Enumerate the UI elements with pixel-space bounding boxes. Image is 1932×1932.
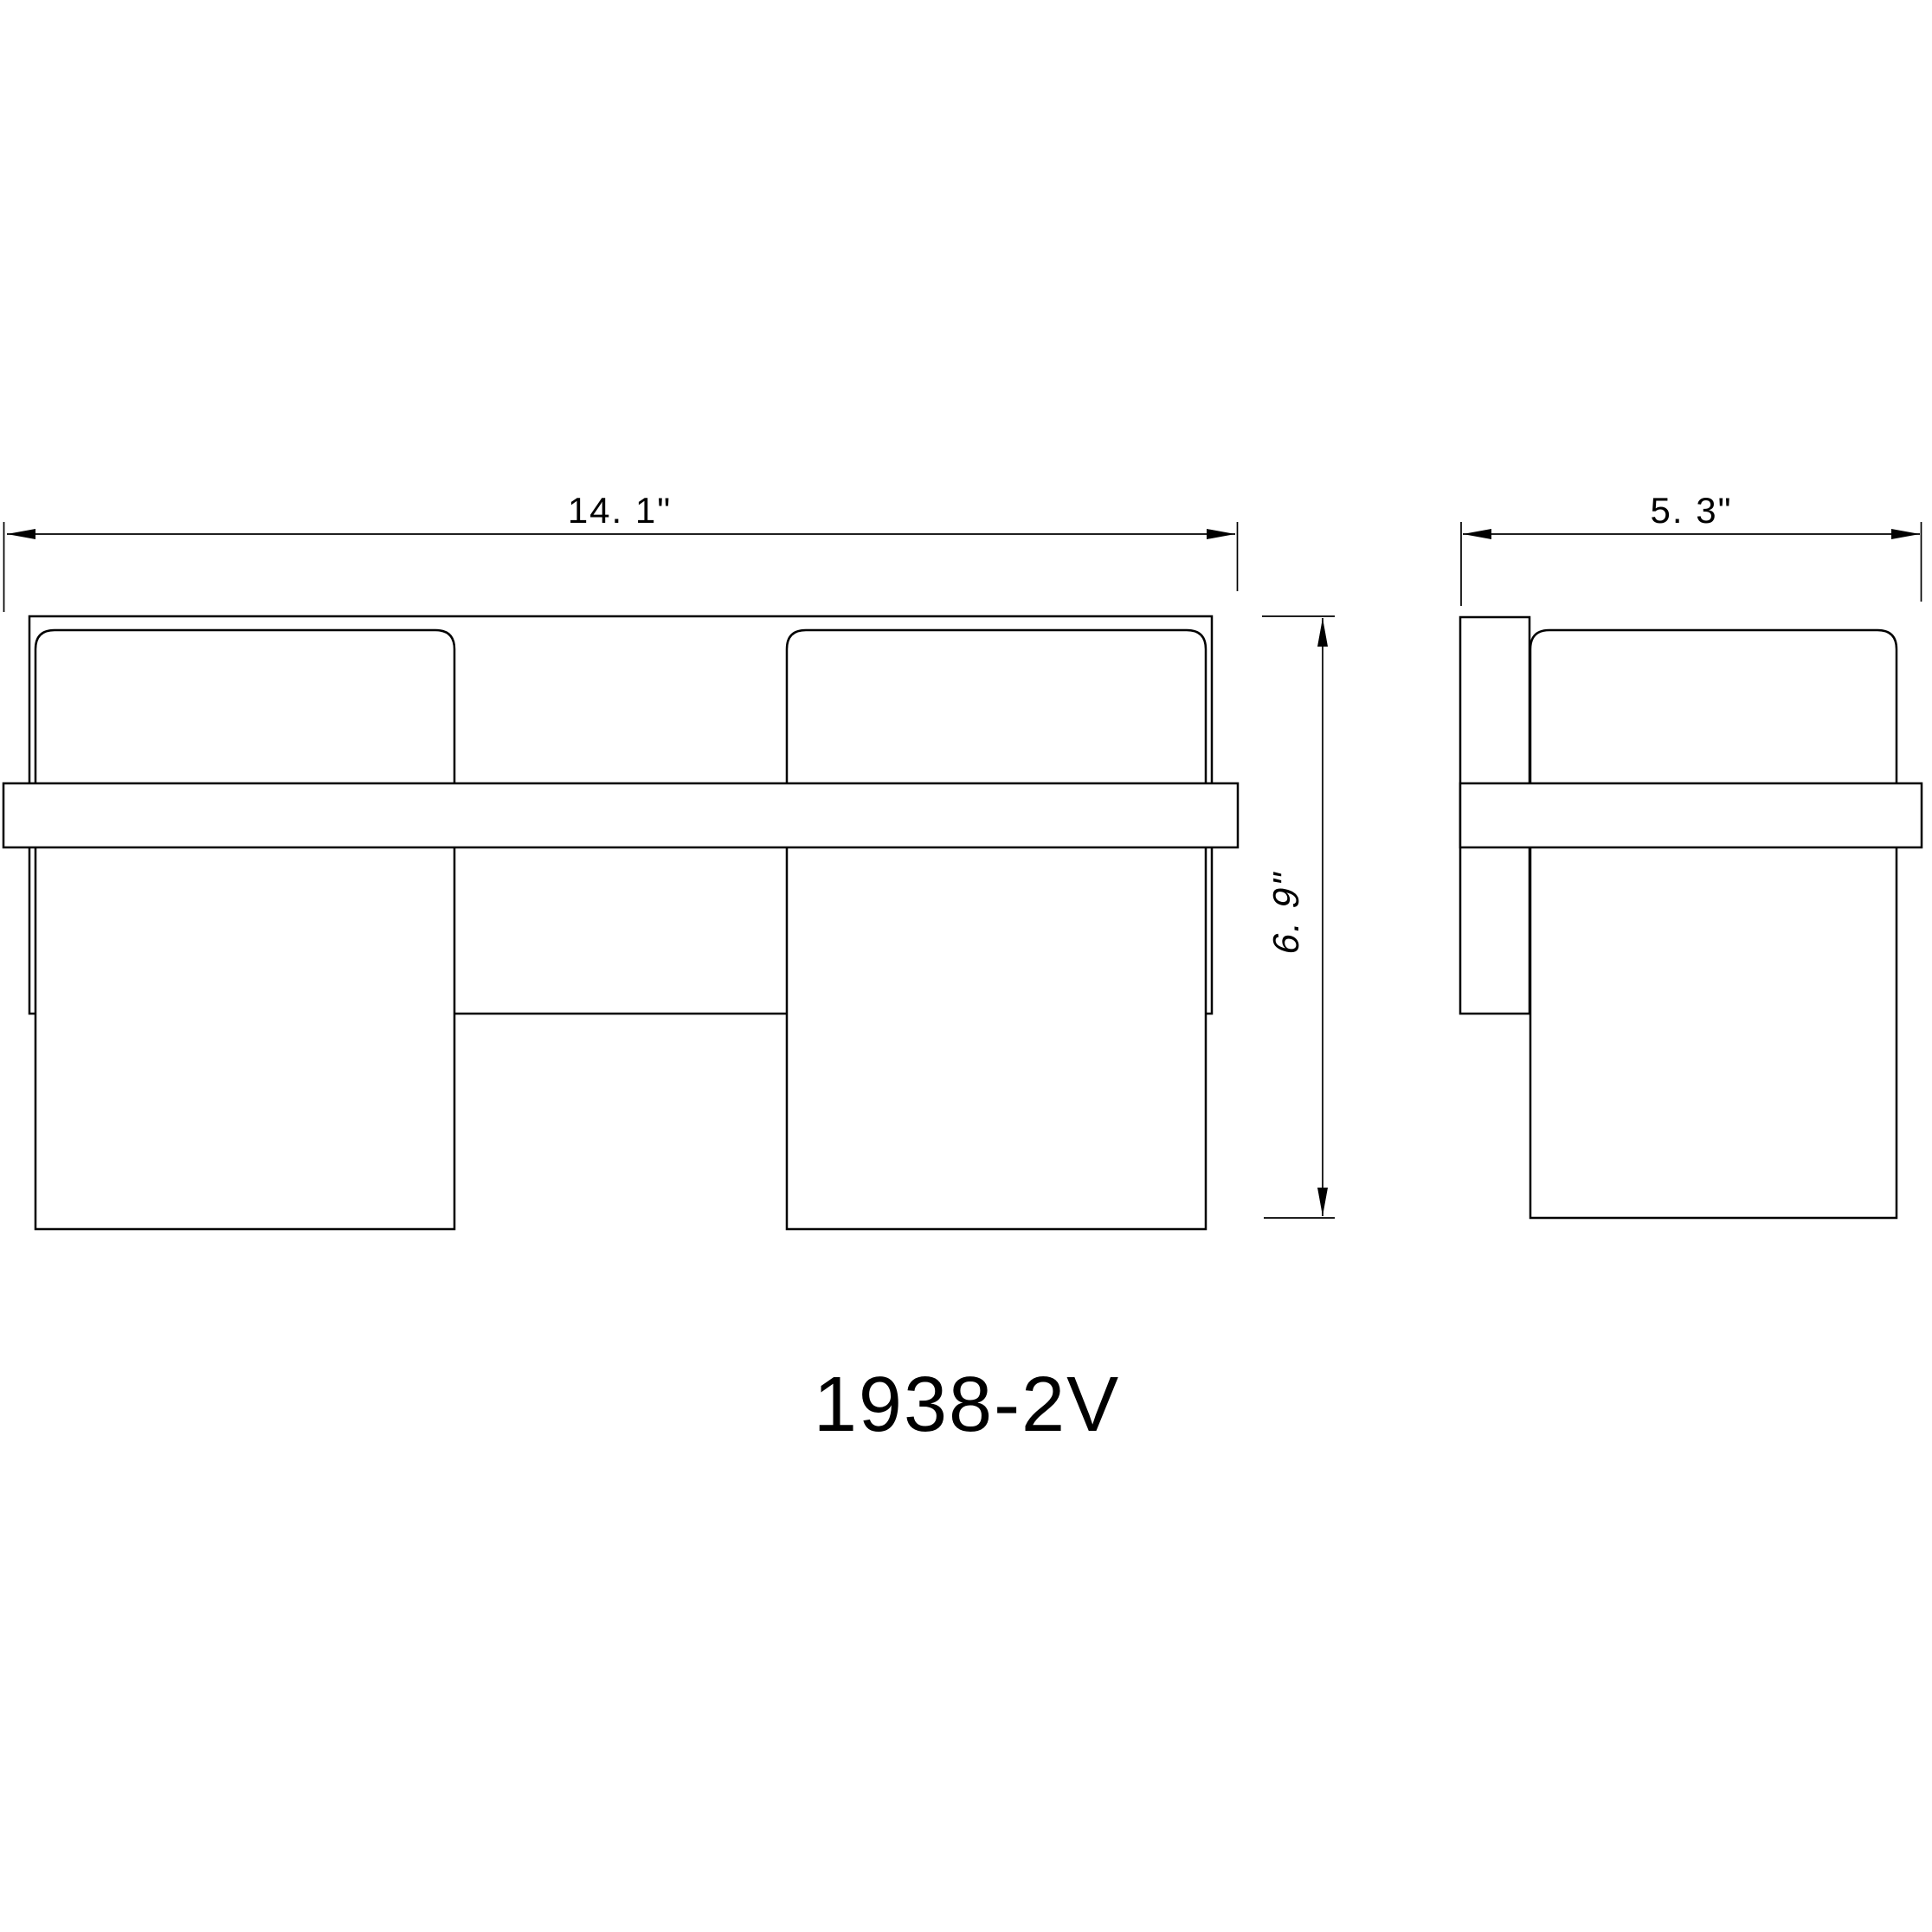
side-shade	[1530, 630, 1897, 1218]
model-number-label: 1938-2V	[814, 1362, 1120, 1448]
front-left-shade	[35, 630, 454, 1229]
height-dimension: 6. 9"	[1262, 616, 1335, 1218]
dimension-arrow-right-icon	[1891, 529, 1920, 539]
dimension-arrow-up-icon	[1317, 618, 1328, 647]
depth-dimension: 5. 3"	[1461, 490, 1922, 606]
width-dimension: 14. 1"	[4, 490, 1238, 612]
drawing-canvas: 14. 1" 5. 3" 6. 9"	[0, 0, 1932, 1932]
dimension-arrow-right-icon	[1207, 529, 1235, 539]
dimension-arrow-left-icon	[1463, 529, 1491, 539]
width-dimension-label: 14. 1"	[568, 490, 672, 531]
side-mounting-bar	[1460, 783, 1922, 847]
dimension-arrow-left-icon	[7, 529, 35, 539]
front-right-shade	[787, 630, 1206, 1229]
depth-dimension-label: 5. 3"	[1651, 490, 1733, 531]
side-view	[1460, 617, 1922, 1218]
front-view	[3, 616, 1238, 1229]
fixture-dimension-diagram: 14. 1" 5. 3" 6. 9"	[0, 0, 1932, 1932]
height-dimension-label: 6. 9"	[1265, 867, 1305, 958]
dimension-arrow-down-icon	[1317, 1188, 1328, 1216]
front-mounting-bar	[3, 783, 1238, 847]
